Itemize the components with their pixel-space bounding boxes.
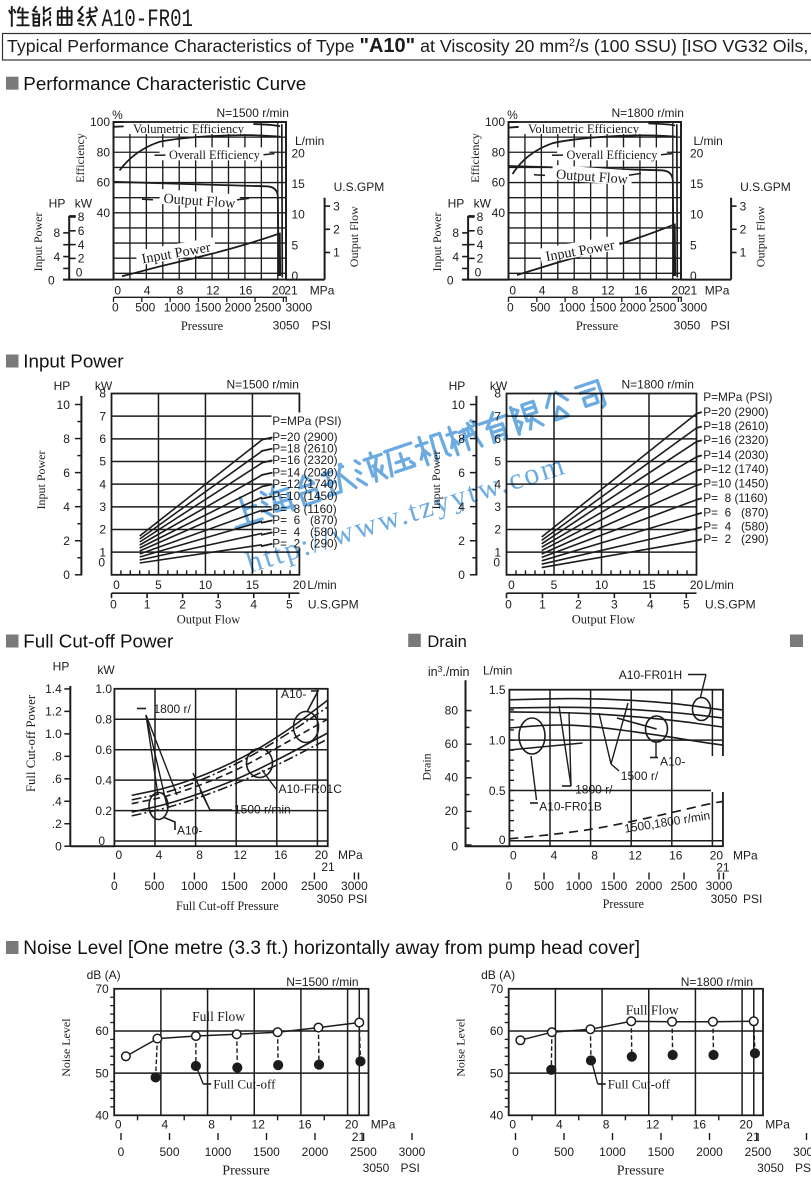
- svg-text:4: 4: [54, 250, 61, 264]
- svg-text:2: 2: [458, 534, 465, 548]
- svg-text:5: 5: [99, 455, 106, 469]
- svg-text:1: 1: [333, 246, 340, 260]
- svg-text:P=12 (1740): P=12 (1740): [703, 462, 768, 476]
- svg-text:2: 2: [740, 222, 747, 236]
- svg-text:Pressure: Pressure: [181, 319, 224, 333]
- svg-text:3050: 3050: [674, 318, 701, 332]
- svg-text:8: 8: [452, 226, 459, 240]
- svg-text:.8: .8: [52, 750, 62, 764]
- svg-text:kW: kW: [97, 663, 115, 677]
- svg-text:0: 0: [110, 598, 117, 612]
- svg-text:0: 0: [447, 274, 454, 288]
- svg-text:N=1800 r/min: N=1800 r/min: [622, 378, 694, 392]
- svg-text:4: 4: [162, 1118, 169, 1132]
- svg-text:7: 7: [99, 409, 106, 423]
- svg-text:80: 80: [97, 145, 111, 159]
- svg-text:0: 0: [505, 598, 512, 612]
- svg-text:500: 500: [554, 1145, 574, 1159]
- svg-text:.6: .6: [52, 772, 62, 786]
- svg-text:2: 2: [477, 252, 484, 266]
- svg-text:6: 6: [63, 466, 70, 480]
- svg-text:1.2: 1.2: [45, 705, 62, 719]
- svg-text:4: 4: [78, 238, 85, 252]
- svg-text:0: 0: [115, 1118, 122, 1132]
- svg-text:P=MPa (PSI): P=MPa (PSI): [703, 390, 772, 404]
- svg-text:PSI: PSI: [795, 1161, 811, 1175]
- svg-text:3: 3: [333, 199, 340, 213]
- svg-text:21: 21: [284, 284, 298, 298]
- svg-text:1500: 1500: [601, 879, 628, 893]
- svg-text:10: 10: [57, 398, 71, 412]
- svg-text:1500: 1500: [195, 301, 222, 315]
- svg-text:MPa: MPa: [705, 284, 730, 298]
- svg-text:500: 500: [144, 879, 164, 893]
- svg-text:60: 60: [490, 1024, 504, 1038]
- svg-text:8: 8: [591, 849, 598, 863]
- svg-text:2: 2: [63, 534, 70, 548]
- svg-text:PSI: PSI: [348, 892, 367, 906]
- svg-text:2500: 2500: [671, 879, 698, 893]
- svg-text:12: 12: [206, 284, 220, 298]
- svg-text:4: 4: [99, 477, 106, 491]
- svg-text:Volumetric Efficiency: Volumetric Efficiency: [133, 122, 245, 136]
- svg-text:Drain: Drain: [420, 753, 434, 780]
- svg-text:4: 4: [477, 238, 484, 252]
- svg-text:0.2: 0.2: [95, 804, 112, 818]
- svg-text:0: 0: [63, 568, 70, 582]
- svg-text:5: 5: [286, 598, 293, 612]
- svg-text:40: 40: [97, 206, 111, 220]
- svg-text:50: 50: [490, 1066, 504, 1080]
- svg-text:3050: 3050: [757, 1161, 784, 1175]
- svg-text:3050: 3050: [711, 892, 738, 906]
- svg-text:2000: 2000: [696, 1145, 723, 1159]
- svg-text:2: 2: [78, 252, 85, 266]
- svg-text:Full Cut-off Power: Full Cut-off Power: [24, 694, 38, 792]
- svg-text:4: 4: [63, 500, 70, 514]
- svg-text:kW: kW: [95, 379, 113, 393]
- svg-text:20: 20: [293, 578, 307, 592]
- svg-text:Efficiency: Efficiency: [468, 133, 482, 183]
- svg-text:16: 16: [693, 1118, 707, 1132]
- svg-text:8: 8: [177, 284, 184, 298]
- svg-text:N=1800 r/min: N=1800 r/min: [612, 106, 684, 120]
- svg-text:P= 6 (870): P= 6 (870): [703, 506, 768, 520]
- svg-text:A10-FR01H: A10-FR01H: [619, 668, 682, 682]
- svg-text:500: 500: [135, 301, 155, 315]
- svg-text:0.6: 0.6: [95, 743, 112, 757]
- svg-text:HP: HP: [449, 379, 466, 393]
- svg-text:60: 60: [97, 176, 111, 190]
- svg-text:6: 6: [78, 224, 85, 238]
- svg-text:10: 10: [291, 208, 305, 222]
- svg-text:Typical Performance Characteri: Typical Performance Characteristics of T…: [7, 35, 808, 57]
- svg-text:PSI: PSI: [401, 1161, 420, 1175]
- svg-text:Efficiency: Efficiency: [73, 133, 87, 183]
- svg-text:A10-: A10-: [177, 824, 202, 838]
- svg-text:1800 r/: 1800 r/: [575, 783, 613, 797]
- svg-text:0: 0: [118, 1145, 125, 1159]
- svg-text:0.8: 0.8: [95, 713, 112, 727]
- svg-text:N=1800 r/min: N=1800 r/min: [681, 975, 753, 989]
- svg-text:0: 0: [509, 1118, 516, 1132]
- svg-text:Full Cut-off: Full Cut-off: [213, 1077, 276, 1092]
- svg-text:A10-: A10-: [660, 755, 685, 769]
- svg-text:2500: 2500: [745, 1145, 772, 1159]
- svg-text:16: 16: [669, 849, 683, 863]
- svg-text:3: 3: [215, 598, 222, 612]
- svg-text:3: 3: [611, 598, 618, 612]
- svg-text:3000: 3000: [341, 879, 368, 893]
- svg-text:12: 12: [646, 1118, 660, 1132]
- svg-text:10: 10: [690, 208, 704, 222]
- svg-text:1: 1: [144, 598, 151, 612]
- svg-text:40: 40: [492, 206, 506, 220]
- svg-text:0: 0: [291, 269, 298, 283]
- svg-text:1500: 1500: [648, 1145, 675, 1159]
- svg-text:8: 8: [208, 1118, 215, 1132]
- svg-text:3000: 3000: [793, 1145, 811, 1159]
- svg-text:HP: HP: [49, 197, 66, 211]
- svg-text:dB (A): dB (A): [481, 968, 515, 982]
- svg-text:%: %: [507, 108, 518, 122]
- svg-text:dB (A): dB (A): [87, 968, 121, 982]
- svg-text:0: 0: [506, 879, 513, 893]
- svg-text:12: 12: [629, 849, 643, 863]
- svg-text:0: 0: [112, 301, 119, 315]
- svg-text:Output Flow: Output Flow: [572, 613, 636, 627]
- svg-text:4: 4: [156, 848, 163, 862]
- svg-text:8: 8: [603, 1118, 610, 1132]
- svg-text:15: 15: [690, 177, 704, 191]
- svg-text:5: 5: [155, 578, 162, 592]
- svg-text:1.0: 1.0: [45, 727, 62, 741]
- svg-text:.4: .4: [52, 795, 62, 809]
- svg-text:5: 5: [683, 598, 690, 612]
- svg-text:0: 0: [111, 879, 118, 893]
- svg-text:20: 20: [445, 804, 459, 818]
- svg-text:70: 70: [490, 982, 504, 996]
- svg-text:2000: 2000: [619, 301, 646, 315]
- svg-text:A10-FR01B: A10-FR01B: [539, 800, 602, 814]
- svg-text:1.0: 1.0: [95, 682, 112, 696]
- svg-text:Volumetric Efficiency: Volumetric Efficiency: [528, 122, 640, 136]
- svg-text:P=14 (2030): P=14 (2030): [703, 448, 768, 462]
- svg-text:A10-FR01: A10-FR01: [102, 5, 194, 34]
- svg-text:Full Flow: Full Flow: [626, 1003, 679, 1018]
- svg-text:21: 21: [684, 284, 698, 298]
- svg-text:16: 16: [298, 1118, 312, 1132]
- svg-text:16: 16: [274, 848, 288, 862]
- svg-text:kW: kW: [490, 379, 508, 393]
- svg-text:MPa: MPa: [371, 1118, 396, 1132]
- svg-text:8: 8: [54, 226, 61, 240]
- svg-text:1000: 1000: [566, 879, 593, 893]
- svg-text:15: 15: [291, 177, 305, 191]
- svg-text:12: 12: [601, 284, 615, 298]
- svg-text:1000: 1000: [164, 301, 191, 315]
- svg-text:0: 0: [509, 284, 516, 298]
- svg-text:Input Power: Input Power: [23, 351, 123, 372]
- svg-text:2500: 2500: [301, 879, 328, 893]
- svg-text:8: 8: [78, 210, 85, 224]
- svg-text:2500: 2500: [255, 301, 282, 315]
- svg-text:8: 8: [572, 284, 579, 298]
- svg-text:Overall Efficiency: Overall Efficiency: [567, 148, 659, 162]
- svg-text:50: 50: [95, 1066, 109, 1080]
- svg-text:8: 8: [196, 848, 203, 862]
- svg-text:1500: 1500: [221, 879, 248, 893]
- svg-text:0: 0: [499, 833, 506, 847]
- svg-text:P=20 (2900): P=20 (2900): [703, 405, 768, 419]
- svg-text:0: 0: [116, 848, 123, 862]
- svg-text:8: 8: [477, 210, 484, 224]
- svg-text:HP: HP: [448, 197, 465, 211]
- svg-text:40: 40: [490, 1109, 504, 1123]
- svg-text:L/min: L/min: [295, 134, 324, 148]
- svg-text:10: 10: [452, 398, 466, 412]
- svg-text:.2: .2: [52, 817, 62, 831]
- svg-text:Pressure: Pressure: [603, 897, 644, 911]
- svg-text:P=10 (1450): P=10 (1450): [703, 477, 768, 491]
- svg-text:MPa: MPa: [338, 848, 363, 862]
- svg-text:Input Power: Input Power: [31, 213, 45, 272]
- svg-text:10: 10: [595, 578, 609, 592]
- svg-text:U.S.GPM: U.S.GPM: [308, 598, 359, 612]
- svg-text:Full Cut-off Pressure: Full Cut-off Pressure: [176, 899, 279, 913]
- svg-text:Output Flow: Output Flow: [753, 206, 767, 267]
- svg-text:P=16 (2320): P=16 (2320): [703, 433, 768, 447]
- svg-text:N=1500 r/min: N=1500 r/min: [217, 106, 289, 120]
- svg-text:1800 r/: 1800 r/: [154, 702, 192, 716]
- svg-text:P=18 (2610): P=18 (2610): [703, 419, 768, 433]
- svg-text:500: 500: [534, 879, 554, 893]
- svg-text:2000: 2000: [261, 879, 288, 893]
- svg-text:2: 2: [179, 598, 186, 612]
- svg-text:4: 4: [452, 250, 459, 264]
- svg-text:60: 60: [95, 1024, 109, 1038]
- svg-text:P= 2 (290): P= 2 (290): [703, 532, 768, 546]
- svg-text:5: 5: [690, 238, 697, 252]
- svg-text:20: 20: [291, 146, 305, 160]
- svg-text:80: 80: [445, 703, 459, 717]
- svg-text:MPa: MPa: [310, 284, 335, 298]
- svg-text:1.5: 1.5: [489, 683, 506, 697]
- svg-text:L/min: L/min: [693, 134, 722, 148]
- svg-text:16: 16: [239, 284, 253, 298]
- svg-text:3050: 3050: [273, 318, 300, 332]
- svg-text:1: 1: [740, 246, 747, 260]
- svg-text:1500 r/min: 1500 r/min: [234, 803, 291, 817]
- svg-text:L/min: L/min: [307, 578, 336, 592]
- svg-text:Noise Level: Noise Level: [59, 1018, 73, 1077]
- svg-text:500: 500: [159, 1145, 179, 1159]
- svg-text:1.0: 1.0: [489, 733, 506, 747]
- svg-text:80: 80: [492, 145, 506, 159]
- svg-text:2500: 2500: [350, 1145, 377, 1159]
- svg-text:Full Cut-off: Full Cut-off: [608, 1077, 671, 1092]
- svg-text:1.4: 1.4: [45, 682, 62, 696]
- svg-text:PSI: PSI: [743, 892, 762, 906]
- svg-text:0: 0: [507, 301, 514, 315]
- svg-text:21: 21: [321, 860, 335, 874]
- svg-text:Full Cut-off Power: Full Cut-off Power: [23, 631, 173, 652]
- svg-text:4: 4: [551, 849, 558, 863]
- svg-text:12: 12: [234, 848, 248, 862]
- svg-text:6: 6: [99, 432, 106, 446]
- svg-text:Full Flow: Full Flow: [192, 1009, 245, 1024]
- svg-text:3: 3: [99, 500, 106, 514]
- svg-text:P= 8 (1160): P= 8 (1160): [703, 491, 767, 505]
- svg-text:3000: 3000: [706, 879, 733, 893]
- svg-text:0: 0: [493, 556, 500, 570]
- svg-text:5: 5: [551, 578, 558, 592]
- svg-text:100: 100: [90, 115, 110, 129]
- svg-text:40: 40: [445, 771, 459, 785]
- svg-text:Noise Level: Noise Level: [454, 1018, 468, 1077]
- svg-text:1500: 1500: [253, 1145, 280, 1159]
- svg-text:0.4: 0.4: [95, 773, 112, 787]
- svg-text:0: 0: [48, 274, 55, 288]
- svg-text:N=1500 r/min: N=1500 r/min: [227, 378, 299, 392]
- svg-text:PSI: PSI: [312, 318, 331, 332]
- svg-text:2: 2: [494, 523, 501, 537]
- svg-text:U.S.GPM: U.S.GPM: [740, 180, 791, 194]
- svg-text:kW: kW: [474, 197, 492, 211]
- svg-text:P=MPa (PSI): P=MPa (PSI): [272, 414, 341, 428]
- svg-text:A10-: A10-: [281, 687, 306, 701]
- svg-text:Noise Level [One metre (3.3 ft: Noise Level [One metre (3.3 ft.) horizon…: [23, 938, 640, 959]
- svg-text:HP: HP: [54, 379, 71, 393]
- svg-text:1000: 1000: [559, 301, 586, 315]
- svg-text:Input Power: Input Power: [430, 213, 444, 272]
- svg-text:5: 5: [291, 238, 298, 252]
- svg-text:1500: 1500: [590, 301, 617, 315]
- svg-text:0: 0: [512, 1145, 519, 1159]
- svg-text:3050: 3050: [317, 892, 344, 906]
- svg-text:kW: kW: [75, 197, 93, 211]
- svg-text:3050: 3050: [363, 1161, 390, 1175]
- svg-text:Drain: Drain: [427, 633, 466, 651]
- svg-text:15: 15: [246, 578, 260, 592]
- svg-text:0: 0: [451, 840, 458, 854]
- svg-text:2: 2: [99, 523, 106, 537]
- svg-text:1500 r/: 1500 r/: [621, 769, 659, 783]
- svg-text:10: 10: [199, 578, 213, 592]
- svg-text:MPa: MPa: [765, 1118, 790, 1132]
- svg-text:3000: 3000: [399, 1145, 426, 1159]
- svg-text:0: 0: [510, 849, 517, 863]
- svg-text:0: 0: [98, 556, 105, 570]
- svg-text:Performance Characteristic Cur: Performance Characteristic Curve: [23, 73, 306, 94]
- svg-text:4: 4: [539, 284, 546, 298]
- svg-text:PSI: PSI: [711, 318, 730, 332]
- svg-text:Output Flow: Output Flow: [177, 613, 241, 627]
- svg-text:0: 0: [690, 269, 697, 283]
- svg-text:2: 2: [575, 598, 582, 612]
- svg-text:Output Flow: Output Flow: [347, 206, 361, 267]
- svg-text:3: 3: [740, 199, 747, 213]
- svg-text:1: 1: [539, 598, 546, 612]
- svg-text:40: 40: [95, 1109, 109, 1123]
- svg-text:70: 70: [95, 982, 109, 996]
- svg-text:Pressure: Pressure: [576, 319, 619, 333]
- svg-text:0.5: 0.5: [489, 784, 506, 798]
- svg-text:HP: HP: [53, 660, 70, 674]
- svg-text:2: 2: [333, 222, 340, 236]
- svg-text:15: 15: [642, 578, 656, 592]
- svg-text:A10-FR01C: A10-FR01C: [279, 782, 343, 796]
- svg-text:1000: 1000: [205, 1145, 232, 1159]
- svg-text:4: 4: [144, 284, 151, 298]
- svg-text:%: %: [112, 108, 123, 122]
- svg-text:1000: 1000: [599, 1145, 626, 1159]
- svg-text:20: 20: [690, 146, 704, 160]
- svg-text:N=1500 r/min: N=1500 r/min: [286, 975, 358, 989]
- svg-text:2000: 2000: [224, 301, 251, 315]
- svg-text:4: 4: [647, 598, 654, 612]
- svg-text:U.S.GPM: U.S.GPM: [705, 598, 756, 612]
- svg-text:3000: 3000: [680, 301, 707, 315]
- svg-text:4: 4: [556, 1118, 563, 1132]
- svg-text:Pressure: Pressure: [222, 1164, 269, 1179]
- svg-text:Pressure: Pressure: [617, 1164, 664, 1179]
- svg-text:2000: 2000: [302, 1145, 329, 1159]
- svg-text:21: 21: [716, 860, 730, 874]
- svg-text:12: 12: [252, 1118, 266, 1132]
- svg-text:0: 0: [55, 840, 62, 854]
- svg-text:0: 0: [475, 265, 482, 279]
- svg-text:in3./min: in3./min: [428, 664, 470, 679]
- svg-text:0: 0: [113, 578, 120, 592]
- svg-text:60: 60: [445, 737, 459, 751]
- svg-text:100: 100: [485, 115, 505, 129]
- svg-text:0: 0: [76, 265, 83, 279]
- svg-text:Input Power: Input Power: [34, 451, 48, 510]
- svg-text:0: 0: [458, 568, 465, 582]
- svg-text:8: 8: [63, 432, 70, 446]
- svg-text:6: 6: [477, 224, 484, 238]
- svg-text:60: 60: [492, 176, 506, 190]
- svg-text:0: 0: [114, 284, 121, 298]
- svg-text:2000: 2000: [636, 879, 663, 893]
- svg-text:0: 0: [508, 578, 515, 592]
- svg-text:2500: 2500: [650, 301, 677, 315]
- svg-text:L/min: L/min: [483, 664, 512, 678]
- svg-text:500: 500: [530, 301, 550, 315]
- svg-text:L/min: L/min: [705, 578, 734, 592]
- svg-text:20: 20: [690, 578, 704, 592]
- svg-text:3000: 3000: [285, 301, 312, 315]
- svg-text:16: 16: [634, 284, 648, 298]
- svg-text:MPa: MPa: [733, 849, 758, 863]
- svg-text:Overall Efficiency: Overall Efficiency: [169, 148, 261, 162]
- svg-text:U.S.GPM: U.S.GPM: [334, 180, 385, 194]
- svg-text:1000: 1000: [181, 879, 208, 893]
- svg-text:4: 4: [250, 598, 257, 612]
